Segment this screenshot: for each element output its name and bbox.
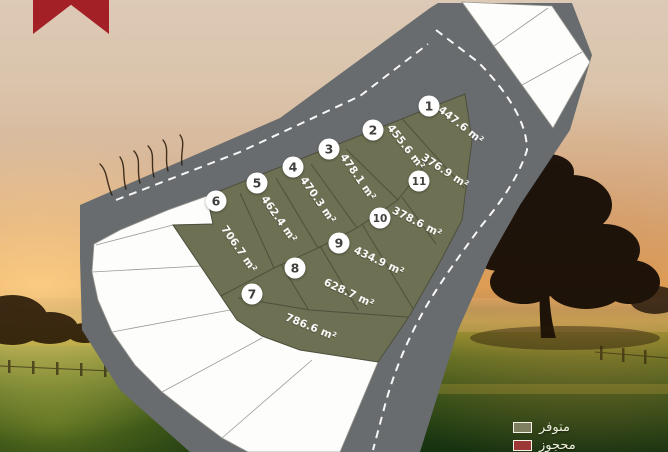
plot-marker: 3 [319, 139, 340, 160]
plot-number: 8 [291, 261, 300, 276]
plot-number: 9 [335, 236, 344, 251]
plot-number: 1 [425, 99, 434, 114]
legend-swatch-available [513, 422, 532, 433]
plot-marker: 10 [370, 208, 391, 229]
legend-label-reserved: محجوز [539, 439, 576, 452]
field-light-streak-right [420, 384, 668, 394]
plot-marker: 9 [329, 233, 350, 254]
legend-label-available: متوفر [539, 421, 570, 434]
plot-number: 4 [289, 160, 298, 175]
plot-marker: 8 [285, 258, 306, 279]
plot-marker: 5 [247, 173, 268, 194]
land-plot-map-image: 447.6 m² 455.6 m² 478.1 m² 470.3 m² 462.… [0, 0, 668, 452]
plot-number: 6 [212, 194, 221, 209]
map-legend: متوفر محجوز [513, 421, 576, 452]
plot-marker: 4 [283, 157, 304, 178]
plot-number: 2 [369, 123, 378, 138]
plot-marker: 11 [409, 171, 430, 192]
plot-number: 10 [373, 213, 388, 225]
plot-number: 7 [248, 287, 257, 302]
plot-number: 11 [412, 176, 427, 188]
tree-ground-shadow [470, 326, 660, 350]
plot-number: 3 [325, 142, 334, 157]
legend-swatch-reserved [513, 440, 532, 451]
plot-marker: 1 [419, 96, 440, 117]
plot-marker: 2 [363, 120, 384, 141]
scene-graphic: 447.6 m² 455.6 m² 478.1 m² 470.3 m² 462.… [0, 0, 668, 452]
plot-marker: 6 [206, 191, 227, 212]
legend-item-available: متوفر [513, 421, 576, 434]
legend-item-reserved: محجوز [513, 439, 576, 452]
plot-number: 5 [253, 176, 262, 191]
plot-marker: 7 [242, 284, 263, 305]
